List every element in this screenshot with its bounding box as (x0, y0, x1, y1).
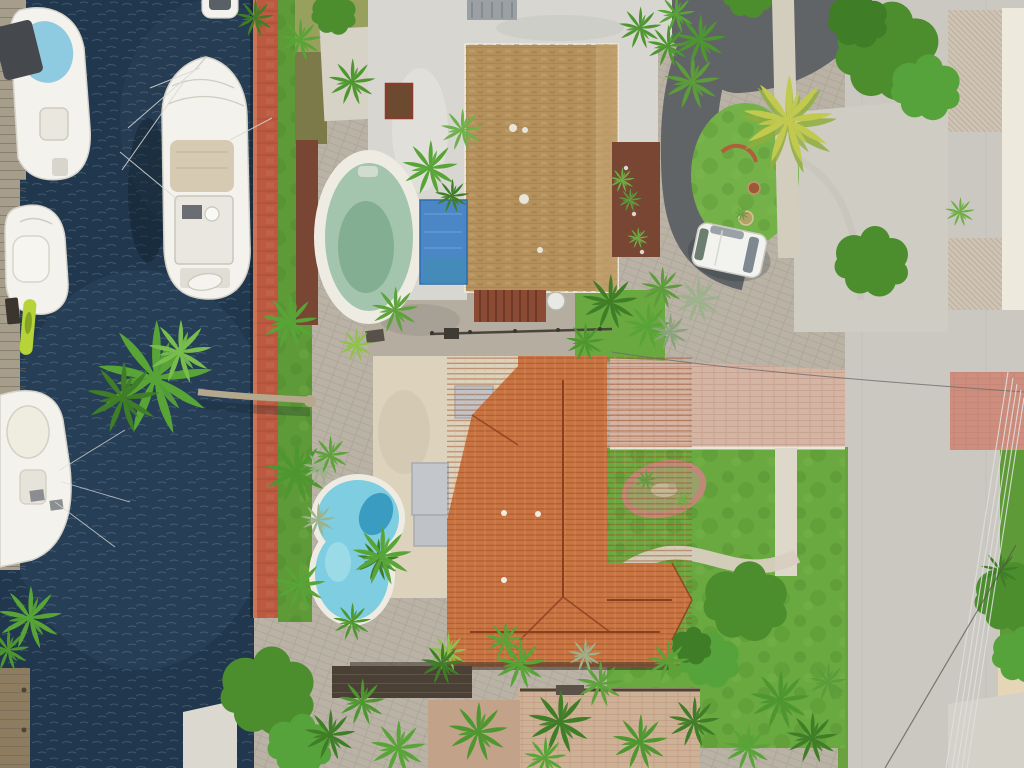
pier-planks (0, 668, 30, 768)
curb-strip (1002, 8, 1024, 310)
paver-band-texture (948, 10, 1005, 132)
pool-step (358, 166, 378, 177)
yard-equipment (365, 329, 384, 343)
paver-band-texture (948, 238, 1005, 310)
dock-cleat (22, 688, 27, 693)
upper-pool-deep (338, 201, 394, 293)
bench (386, 84, 412, 118)
hull-window (49, 499, 63, 511)
garden-pot (748, 182, 760, 194)
tile-roof (447, 356, 692, 667)
helm-console (182, 205, 202, 219)
helm-seat (205, 207, 219, 221)
boat-interior (209, 0, 231, 10)
aerial-photo-canvas (0, 0, 1024, 768)
upper-house-white-roof-right (616, 44, 658, 142)
outboard-motor (52, 158, 68, 176)
roof-ac-panel-2 (414, 515, 450, 546)
tile-texture (447, 356, 692, 667)
boat-canvas-top (7, 406, 49, 458)
seawall-cap (253, 0, 257, 618)
trunk-base (304, 395, 316, 407)
canvas-cover (170, 140, 234, 192)
dock-cleat (22, 728, 27, 733)
boat-small-top (202, 0, 238, 18)
dock-box (5, 297, 21, 324)
bimini-top (13, 236, 49, 282)
grill (444, 328, 459, 339)
tarp-teal-edge (423, 258, 465, 284)
satellite-dish (547, 292, 565, 310)
shingle-texture (465, 44, 618, 292)
aerial-photo: Aerial drone view of waterfront homes: c… (0, 0, 1024, 768)
pool-sparkle (325, 542, 351, 582)
driveway-apron-bottom (948, 692, 1024, 768)
roof-stain (378, 390, 430, 474)
boat-console (40, 108, 68, 140)
roof-ac-panel (412, 463, 448, 515)
hull-window (29, 489, 44, 502)
waterline-shadow (250, 0, 253, 618)
concrete-apron (794, 98, 948, 332)
